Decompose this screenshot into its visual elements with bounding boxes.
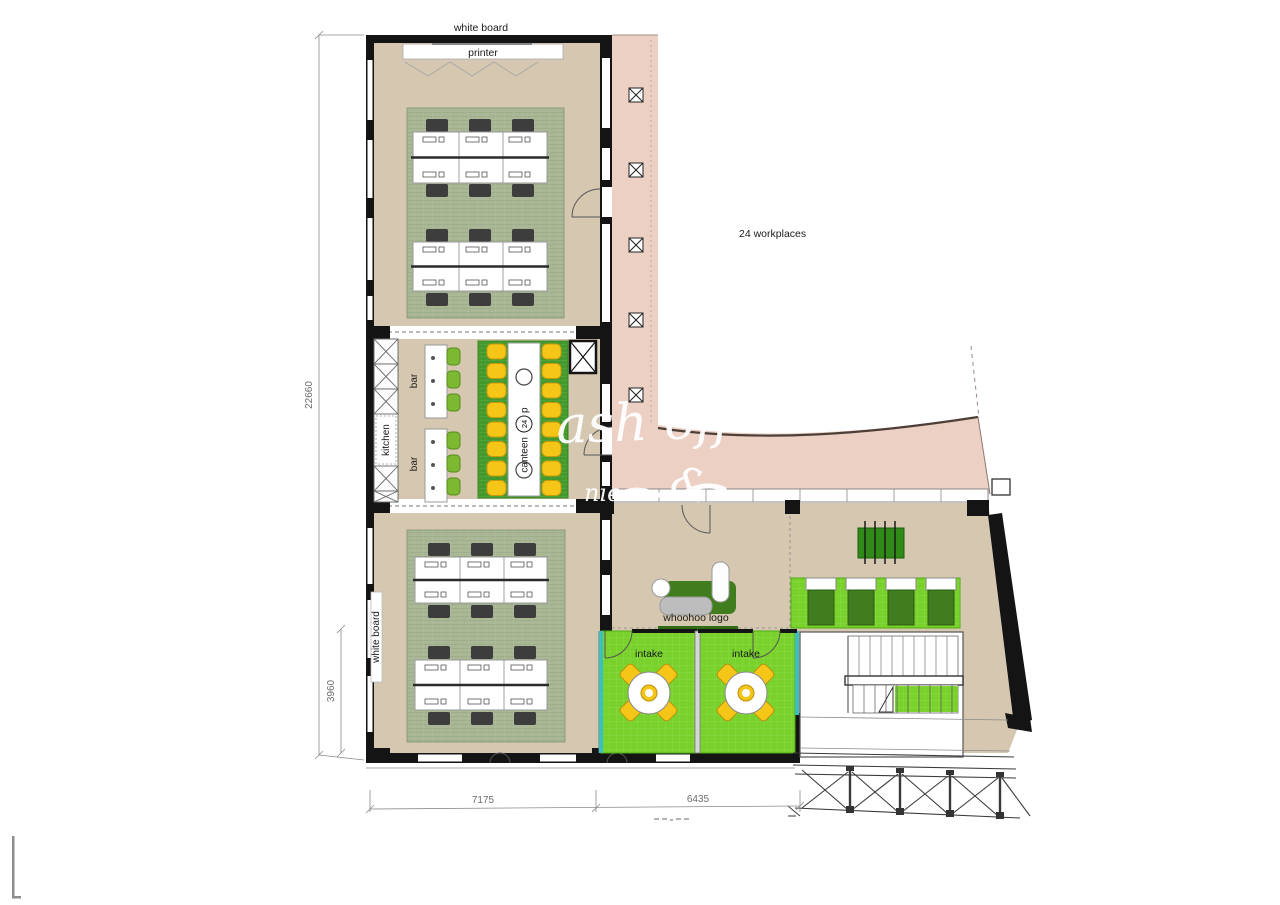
dim-bottom-left: 7175: [472, 795, 495, 806]
workplaces-note: 24 workplaces: [739, 228, 806, 240]
clipped-dimension-remnant: [654, 818, 689, 821]
dim-total-height: 22660: [304, 381, 315, 409]
exterior-truss: [788, 753, 1030, 819]
kitchen-label: kitchen: [381, 424, 392, 456]
svg-text:white board: white board: [371, 611, 382, 664]
site-boundary-dashed: [971, 346, 979, 418]
intake-divider-wall: [695, 631, 700, 753]
side-table: [652, 579, 670, 597]
corner-column: [992, 479, 1010, 495]
intake-left-label: intake: [635, 648, 663, 660]
svg-text:canteen: canteen: [520, 437, 531, 473]
whiteboard-top-label: white board: [453, 22, 508, 34]
page-border-mark: [12, 836, 21, 899]
chaise: [712, 562, 729, 602]
stair-handrail: [845, 676, 963, 685]
svg-text:24: 24: [520, 420, 529, 428]
desk-cluster: [411, 119, 549, 197]
intake-room-right: intake: [695, 629, 799, 753]
whoohoo-logo-label: whoohoo logo: [662, 612, 729, 624]
svg-text:p: p: [520, 407, 531, 413]
bar-lower-label: bar: [409, 456, 420, 471]
kitchen-counter: kitchen: [374, 339, 398, 502]
intake-right-label: intake: [732, 648, 760, 660]
intake-room-left: intake: [599, 629, 697, 753]
desk-cluster: [411, 229, 549, 306]
watermark-fragment: nie: [584, 479, 621, 507]
waiting-lounge: [791, 578, 960, 628]
bar-upper-label: bar: [409, 373, 420, 388]
desk-cluster: [413, 543, 549, 618]
desk-cluster: [413, 646, 549, 725]
dim-bottom-right: 6435: [687, 794, 710, 805]
whiteboard-left: white board: [371, 592, 382, 682]
floor-plan-page: kitchen bar bar canteen: [0, 0, 1280, 905]
elevator-shaft: [570, 341, 596, 373]
watermark-line1: ash off: [555, 390, 741, 456]
floor-plan-drawing: kitchen bar bar canteen: [0, 0, 1280, 905]
printer-label: printer: [468, 47, 498, 59]
dim-lower-room-height: 3960: [326, 679, 337, 702]
